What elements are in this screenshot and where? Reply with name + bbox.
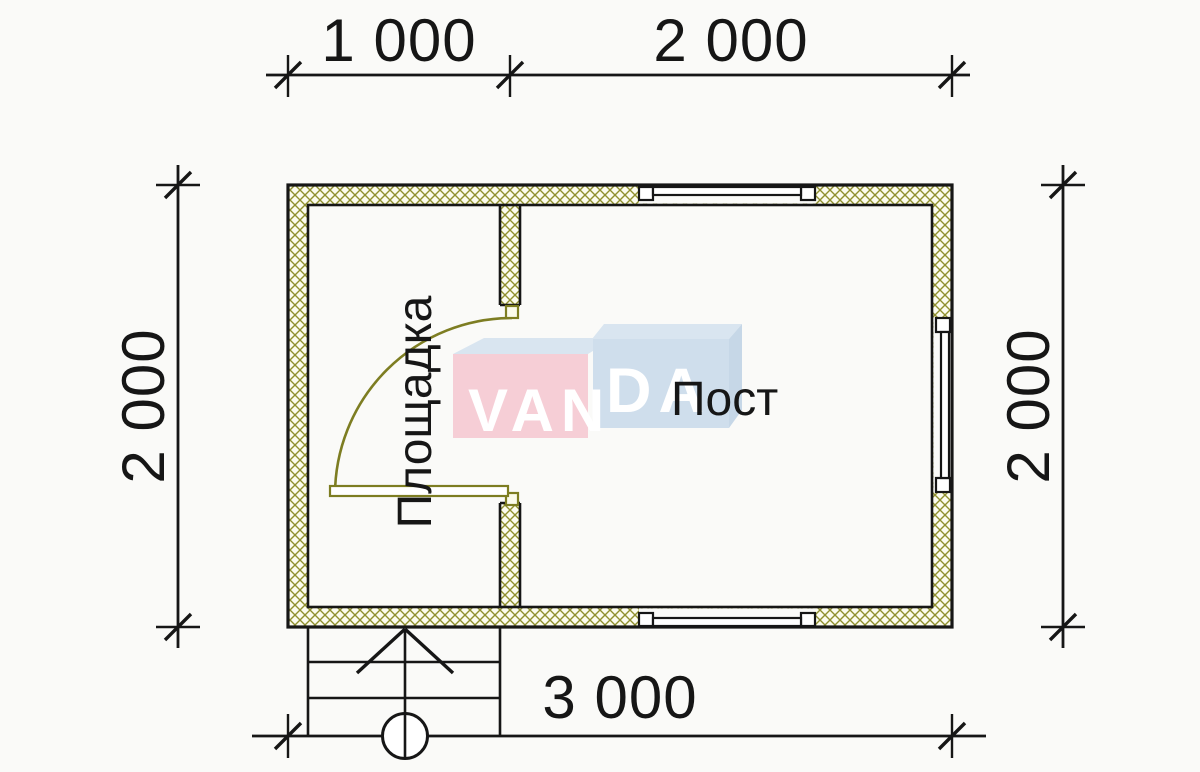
partition-upper-fill — [500, 200, 520, 305]
dim-label-right: 2 000 — [999, 328, 1059, 483]
room-label-ploshchadka: Площадка — [392, 296, 440, 529]
dim-label-bottom: 3 000 — [288, 668, 952, 728]
window-bottom — [639, 609, 815, 627]
window-right — [934, 318, 951, 492]
dim-label-top-left: 1 000 — [288, 11, 510, 71]
dim-label-top-right: 2 000 — [510, 11, 952, 71]
dim-label-left: 2 000 — [114, 328, 174, 483]
partition-lower-fill — [500, 503, 520, 611]
door-jamb-top — [506, 306, 518, 318]
floor-plan-canvas: 1 000 2 000 2 000 2 000 3 000 VAN DA Пло… — [0, 0, 1200, 772]
window-top — [639, 187, 815, 204]
room-label-post: Пост — [671, 376, 778, 424]
vanda-logo-text-van: VAN — [468, 381, 611, 441]
